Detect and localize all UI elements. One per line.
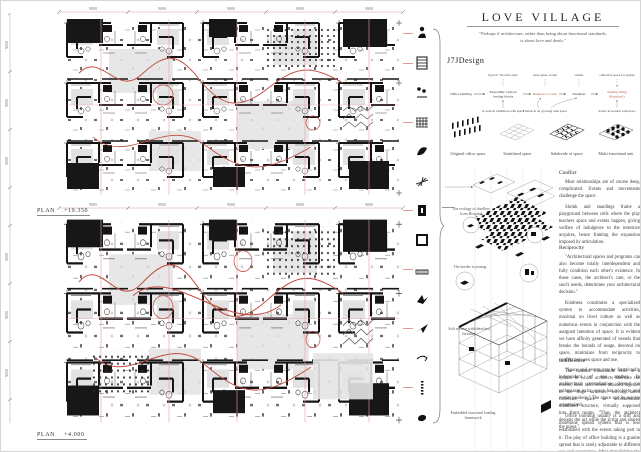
svg-text:9000: 9000 <box>89 202 97 207</box>
axon-label-ecology: The ecology of dwellers from Hospital <box>448 207 494 218</box>
axon-voxel-village <box>467 197 553 257</box>
legend-item <box>414 84 430 100</box>
paragraph: Kindness constitutes a specialized syste… <box>559 300 640 363</box>
leader-line <box>403 387 413 388</box>
mini-diagram-undefined: Undefined space <box>494 115 540 156</box>
leaf-icon <box>414 143 430 159</box>
axon-label-structure: Embedded structural loading framework <box>449 411 497 422</box>
diagram-caption: Multi-functional unit <box>593 151 639 156</box>
diagram-caption: Subdivide of space <box>544 151 590 156</box>
svg-text:9000: 9000 <box>296 202 304 207</box>
svg-text:9000: 9000 <box>4 311 9 319</box>
flow-node-plaza: Plaza(soft) <box>609 95 625 99</box>
legend-item <box>414 350 430 366</box>
section-heading: Conflict <box>559 169 640 177</box>
svg-text:9000: 9000 <box>4 253 9 261</box>
concept-flow-diagram: Typical "Growth cube" more photo works s… <box>445 67 641 117</box>
svg-text:9000: 9000 <box>365 6 373 11</box>
legend-item <box>414 55 430 71</box>
paragraph: Office building usually is a stiff and m… <box>559 413 640 452</box>
svg-text:9000: 9000 <box>158 6 166 11</box>
legend-brace <box>431 27 445 425</box>
leader-line <box>403 33 413 34</box>
title-rule <box>467 26 619 27</box>
legend-item <box>414 261 430 277</box>
hatch-grid-icon <box>414 114 430 130</box>
flow-bottom-label: Poster in Garden with space <box>599 109 637 113</box>
flow-node-loading-blocks: loading blocks <box>493 95 514 99</box>
paragraph: "Space and events can be functionally in… <box>559 367 640 409</box>
person-icon <box>414 25 430 41</box>
leader-line <box>403 269 413 270</box>
mini-diagram-original: Original office space <box>445 115 491 156</box>
legend-item <box>414 143 430 159</box>
dimension-strip-top: 9000 9000 9000 9000 9000 <box>13 5 405 15</box>
flow-top-label: soldier <box>575 73 585 77</box>
page-title: LOVE VILLAGE <box>445 10 641 25</box>
flow-top-label: collective space for parties <box>599 73 635 77</box>
plan-level: +19.350 <box>64 208 88 214</box>
hand-icon <box>414 350 430 366</box>
svg-text:9000: 9000 <box>4 157 9 165</box>
plan-level: +4.000 <box>64 432 84 438</box>
multi-functional-unit-icon <box>596 115 636 145</box>
slot-block-icon <box>414 202 430 218</box>
leader-line <box>403 63 413 64</box>
subdivide-of-space-icon <box>547 115 587 145</box>
legend-item <box>414 409 430 425</box>
legend-item <box>414 114 430 130</box>
section-conflict: Conflict Most relationships are of cours… <box>559 169 640 251</box>
axon-label-soft-service: Soft service with detached furniture <box>447 327 491 338</box>
diagram-caption: Undefined space <box>494 151 540 156</box>
flow-node-office-building: Office building <box>450 92 472 96</box>
svg-text:9000: 9000 <box>89 6 97 11</box>
legend-item <box>414 232 430 248</box>
bird-icon <box>414 291 430 307</box>
floor-plan-top <box>13 15 405 199</box>
studio-logo: J7JDesign <box>447 56 484 65</box>
flow-bottom-label: A room in exhibition with space <box>482 109 525 113</box>
flow-top-label: Typical "Growth cube" <box>488 73 519 77</box>
paragraph: Most relationships are of course deep, c… <box>559 179 640 200</box>
legend-item <box>414 202 430 218</box>
svg-text:9000: 9000 <box>227 202 235 207</box>
original-office-space-icon <box>448 115 488 145</box>
paragraph: "Architectural spaces and programs can a… <box>559 254 640 296</box>
section-heading: Reciprocity <box>559 244 640 252</box>
plan-label-bottom: PLAN+4.000 <box>37 432 87 440</box>
dotted-column-icon <box>414 379 430 395</box>
mini-diagram-subdivide: Subdivide of space <box>544 115 590 156</box>
flow-bottom-label: Friends in art growing with space <box>523 109 568 113</box>
striped-cabinet-icon <box>414 55 430 71</box>
plan-word: PLAN <box>37 208 55 214</box>
plan-word: PLAN <box>37 432 55 438</box>
legend-item <box>414 173 430 189</box>
svg-text:9000: 9000 <box>4 99 9 107</box>
figure-pair-icon <box>414 84 430 100</box>
svg-text:9000: 9000 <box>4 369 9 377</box>
presentation-sheet: 9000 9000 9000 9000 9000 9000 9000 9000 … <box>0 0 641 452</box>
flow-top-label: more photo works <box>533 73 558 77</box>
vertical-dimension-line: 9000 9000 9000 9000 9000 9000 <box>3 13 13 427</box>
stone-icon <box>414 409 430 425</box>
section-indifference: Indifference "Space and events can be fu… <box>559 357 640 452</box>
transformation-diagrams: Original office space Undefined space Su… <box>445 115 639 156</box>
svg-text:9000: 9000 <box>296 6 304 11</box>
leader-line <box>403 122 413 123</box>
axon-label-border: The border is joining <box>450 265 490 270</box>
legend-item <box>414 25 430 41</box>
legend-item <box>414 291 430 307</box>
quote-line: is about love and death." <box>520 38 565 43</box>
svg-text:9000: 9000 <box>158 202 166 207</box>
svg-text:9000: 9000 <box>4 41 9 49</box>
flow-node-kindness: Kindness <box>572 92 586 96</box>
paper-plane-icon <box>414 320 430 336</box>
striped-platform-icon <box>414 261 430 277</box>
leader-line <box>403 328 413 329</box>
section-heading: Indifference <box>559 357 640 365</box>
leader-line <box>403 210 413 211</box>
axon-structural-frame <box>459 303 551 413</box>
svg-text:9000: 9000 <box>365 202 373 207</box>
frame-icon <box>414 232 430 248</box>
undefined-space-icon <box>497 115 537 145</box>
flow-node-behavior-code: Behavior to code <box>533 92 557 96</box>
flow-node-loading-blocks: Monolithic vertical <box>490 90 517 94</box>
flow-node-plaza: Seating living <box>607 90 627 94</box>
diagram-caption: Original office space <box>445 151 491 156</box>
legend-item <box>414 379 430 395</box>
bench-icon <box>414 173 430 189</box>
floor-plan-bottom <box>13 215 405 427</box>
legend-item <box>414 320 430 336</box>
mini-diagram-multifunctional: Multi-functional unit <box>593 115 639 156</box>
subtitle-quote: "Perhaps if architecture, rather than be… <box>467 30 619 44</box>
paragraph: Shrink and standings frame a playground … <box>559 204 640 246</box>
quote-line: "Perhaps if architecture, rather than be… <box>479 31 606 36</box>
svg-text:9000: 9000 <box>227 6 235 11</box>
